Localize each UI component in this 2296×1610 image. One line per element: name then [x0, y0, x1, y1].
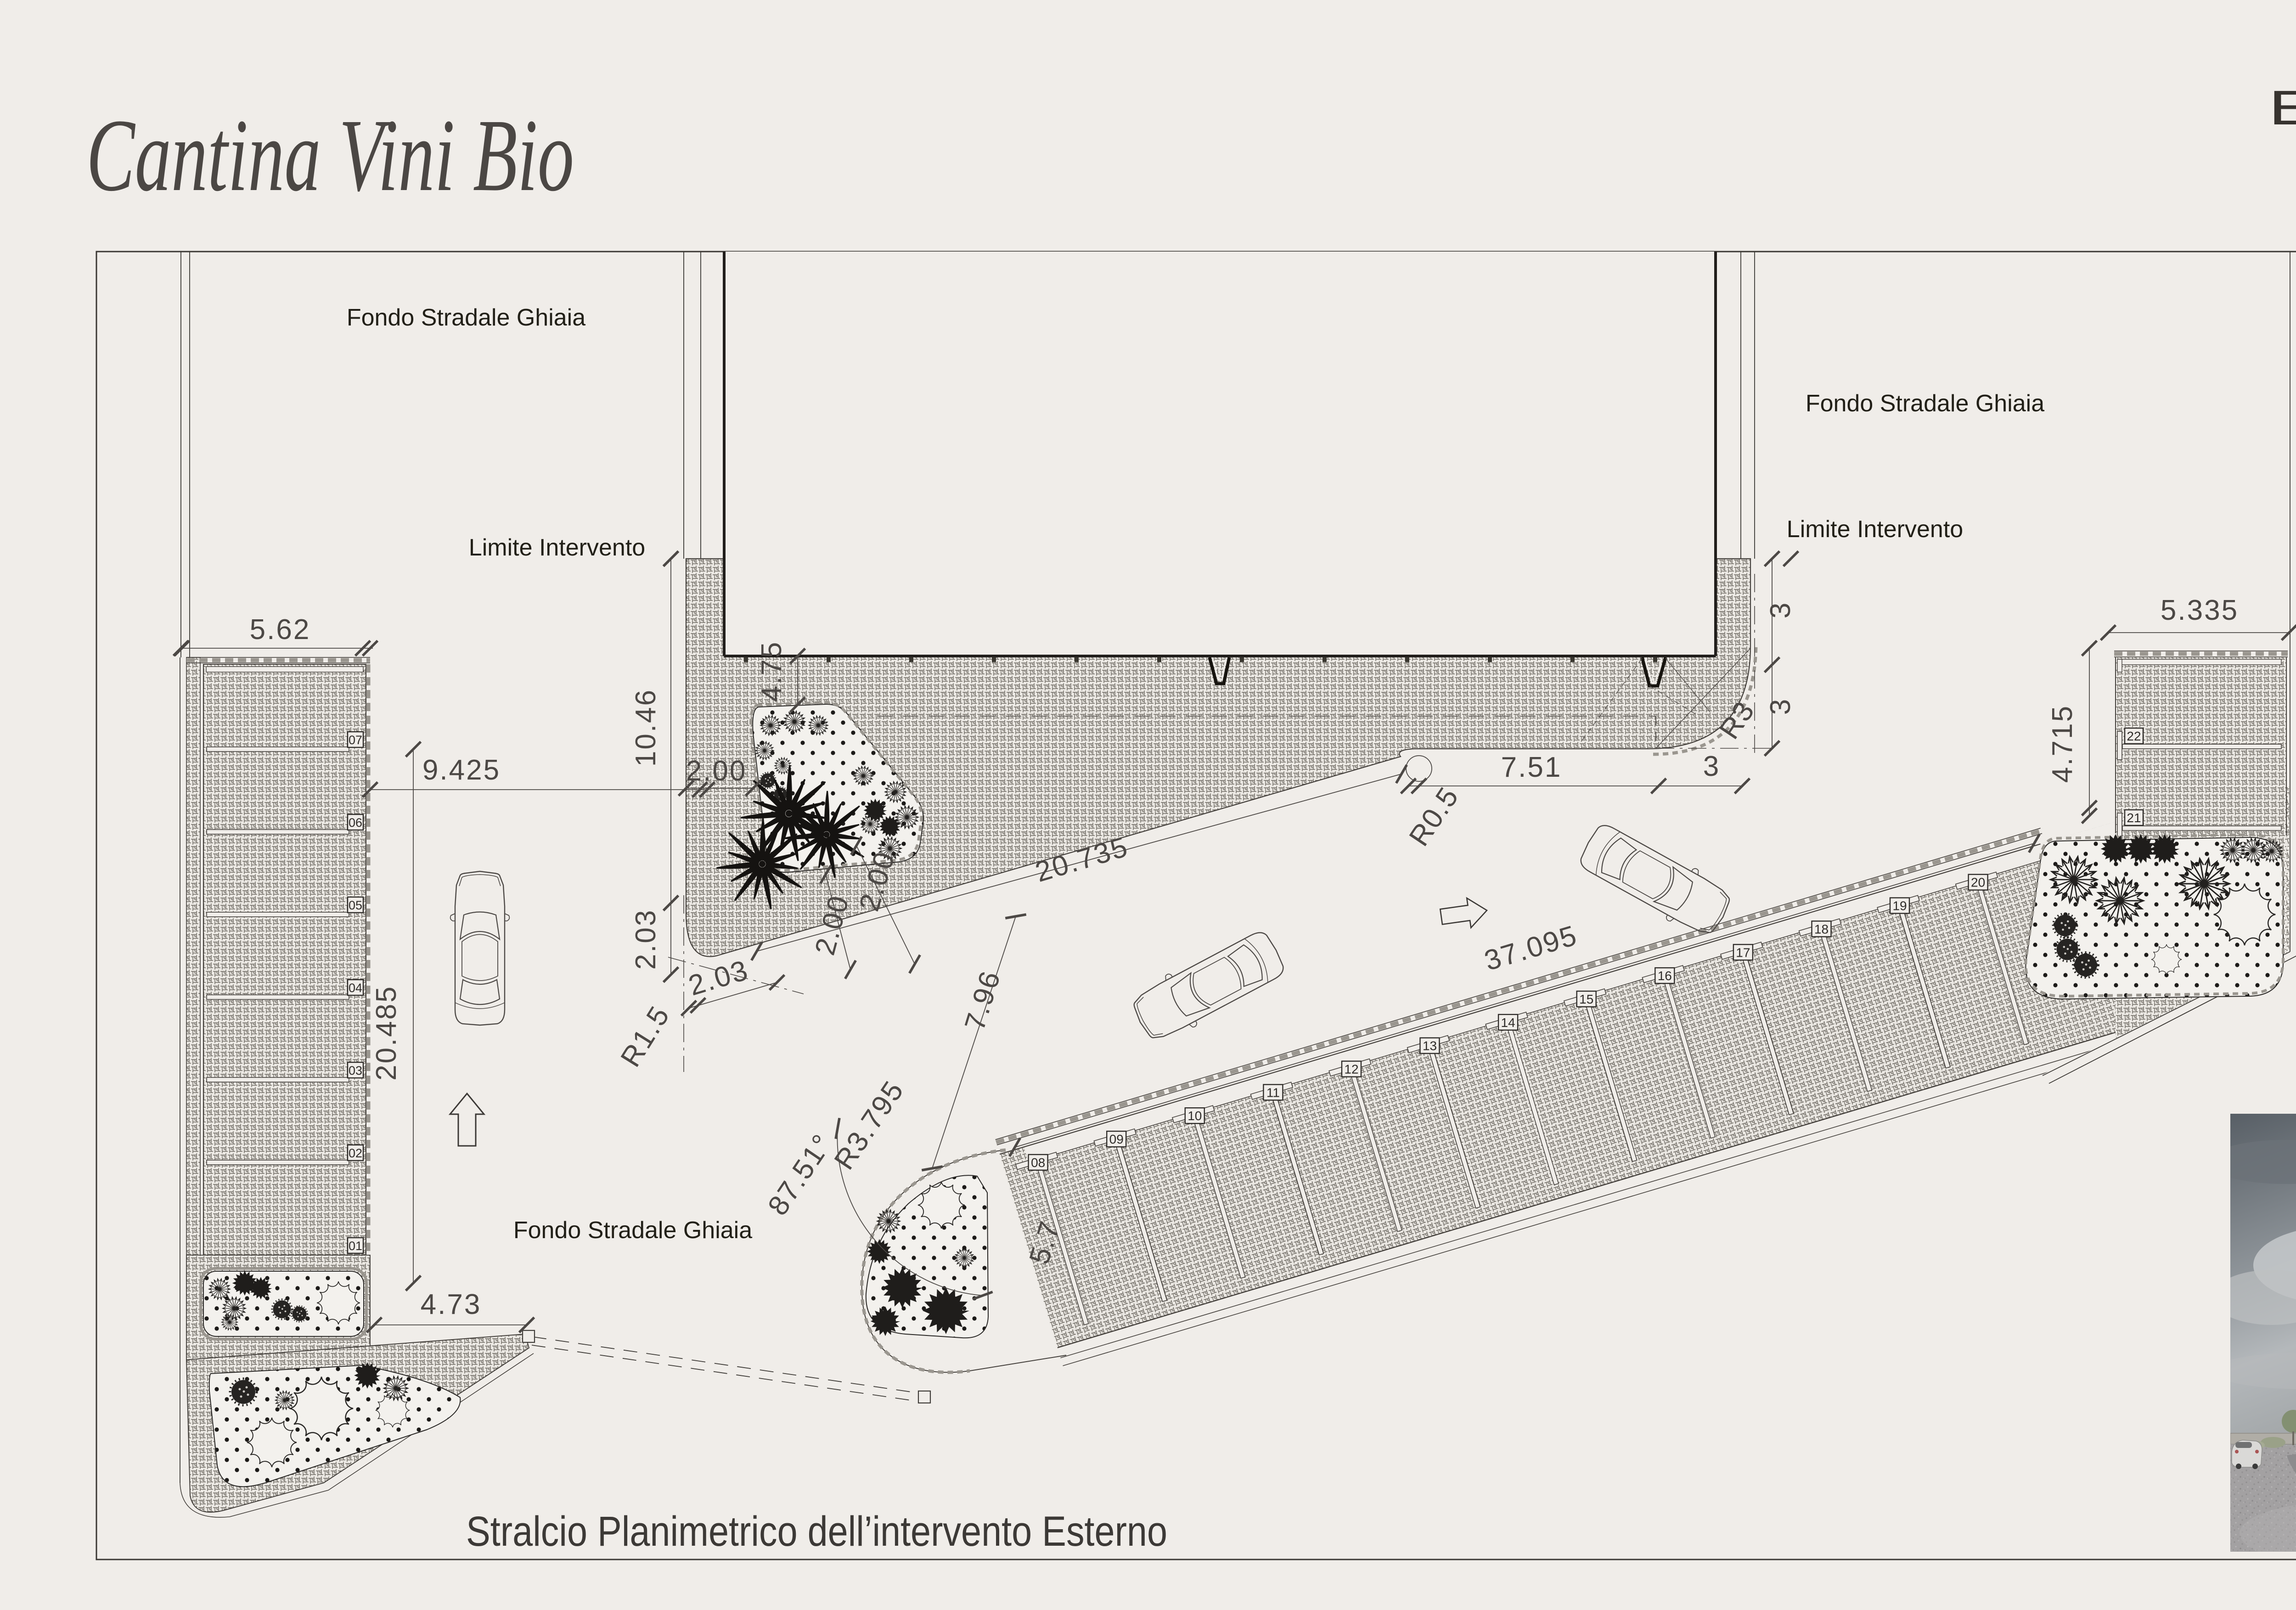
svg-text:19: 19: [1892, 899, 1907, 913]
svg-text:5.62: 5.62: [250, 614, 311, 645]
svg-text:02: 02: [349, 1146, 362, 1160]
svg-text:Fondo Stradale Ghiaia: Fondo Stradale Ghiaia: [347, 304, 585, 331]
svg-text:10.46: 10.46: [630, 689, 662, 767]
svg-text:16: 16: [1658, 969, 1672, 983]
svg-text:17: 17: [1736, 945, 1750, 959]
svg-text:11: 11: [1266, 1085, 1280, 1100]
svg-text:4.73: 4.73: [421, 1289, 482, 1320]
svg-text:4.715: 4.715: [2047, 705, 2078, 783]
svg-text:5.335: 5.335: [2161, 595, 2239, 626]
svg-text:3: 3: [1703, 751, 1719, 782]
svg-text:04: 04: [349, 981, 362, 995]
svg-text:15: 15: [1579, 992, 1593, 1006]
svg-text:Limite Intervento: Limite Intervento: [1787, 516, 1963, 543]
svg-text:08: 08: [1031, 1156, 1045, 1170]
svg-text:21: 21: [2127, 811, 2141, 825]
svg-text:13: 13: [1423, 1039, 1437, 1053]
svg-text:Esterno: Esterno: [2268, 81, 2296, 135]
svg-text:Cantina Vini Bio: Cantina Vini Bio: [86, 98, 574, 213]
svg-text:01: 01: [349, 1239, 362, 1253]
svg-text:9.425: 9.425: [422, 754, 501, 786]
svg-text:12: 12: [1344, 1062, 1358, 1077]
svg-text:2.03: 2.03: [630, 909, 662, 970]
svg-text:06: 06: [349, 816, 362, 830]
svg-text:Limite Intervento: Limite Intervento: [469, 534, 645, 561]
svg-text:05: 05: [349, 898, 362, 912]
svg-text:22: 22: [2127, 729, 2141, 743]
svg-text:14: 14: [1501, 1015, 1515, 1030]
svg-text:20: 20: [1971, 875, 1985, 890]
svg-text:07: 07: [349, 733, 362, 747]
svg-text:10: 10: [1187, 1109, 1202, 1123]
svg-text:3: 3: [1765, 699, 1796, 715]
svg-text:4.75: 4.75: [756, 641, 788, 702]
svg-text:Fondo Stradale Ghiaia: Fondo Stradale Ghiaia: [513, 1217, 752, 1244]
svg-text:Stralcio Planimetrico dell’int: Stralcio Planimetrico dell’intervento Es…: [466, 1508, 1167, 1555]
svg-text:20.485: 20.485: [371, 985, 402, 1081]
svg-text:09: 09: [1109, 1132, 1124, 1146]
svg-text:7.51: 7.51: [1501, 752, 1562, 783]
svg-text:Fondo Stradale Ghiaia: Fondo Stradale Ghiaia: [1806, 390, 2044, 417]
svg-text:03: 03: [349, 1064, 362, 1077]
svg-text:18: 18: [1814, 922, 1829, 936]
svg-text:3: 3: [1765, 603, 1796, 618]
svg-text:2.00: 2.00: [686, 755, 747, 787]
